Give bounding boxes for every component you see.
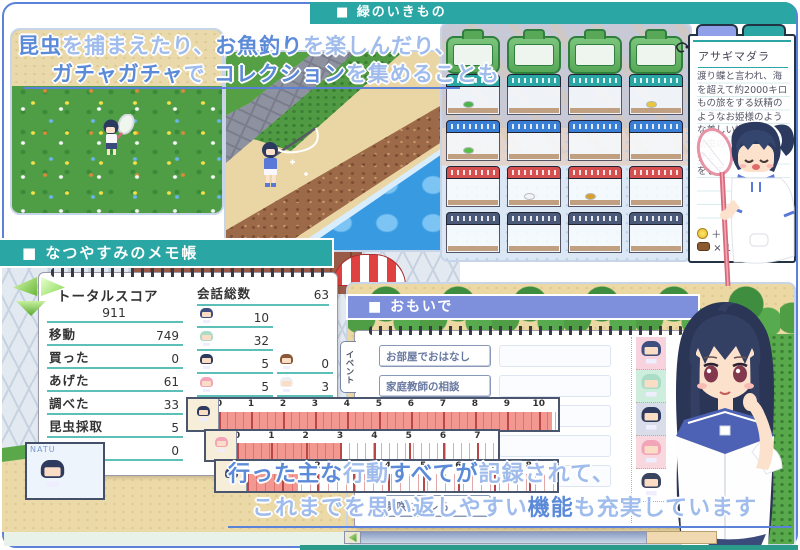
insect-tank <box>507 74 561 116</box>
tank-body <box>568 225 622 253</box>
tank-body <box>629 225 683 253</box>
spiral-binding <box>369 326 684 335</box>
tank-lid <box>629 212 683 225</box>
insect-tank <box>568 166 622 208</box>
insect-tank <box>568 212 622 254</box>
meter-tick <box>315 412 317 430</box>
meter-tick-label: 6 <box>408 400 414 409</box>
tank-lid <box>507 120 561 133</box>
encyclopedia-tab-blue[interactable] <box>696 24 738 36</box>
meter-tick-label: 7 <box>474 432 480 441</box>
conversation-cell: 32 <box>197 331 273 351</box>
memory-slot-empty <box>499 435 611 457</box>
meter-tick-label: 2 <box>303 432 309 441</box>
character-avatar <box>196 406 211 423</box>
bug <box>464 148 473 153</box>
footer-segment: これまでを思い返しやすい <box>252 496 528 521</box>
tank-body <box>629 87 683 115</box>
description-line: もの旅をする妖精の <box>697 97 790 111</box>
meter-tick-label: 10 <box>533 400 546 409</box>
conversation-count: 32 <box>219 334 269 348</box>
cage-row <box>446 120 686 162</box>
scrollbar-left-button[interactable] <box>344 531 361 544</box>
stat-label: 調べた <box>49 393 90 412</box>
tank-lid <box>446 120 500 133</box>
meter-tick <box>347 412 349 430</box>
tank-body <box>446 133 500 161</box>
carry-case <box>507 36 561 74</box>
tank-body <box>446 87 500 115</box>
conversation-cell: 0 <box>277 354 333 374</box>
memory-item[interactable]: お部屋でおはなし <box>379 345 491 367</box>
footer-segment: 行動 <box>343 462 389 487</box>
meter-tick-label: 5 <box>406 432 412 441</box>
footer-segment: 行った主な <box>228 462 343 487</box>
scrollbar-track[interactable] <box>361 531 647 544</box>
section-header-memories: ■ おもいで <box>346 294 700 320</box>
tank-body <box>629 133 683 161</box>
stat-value: 749 <box>156 329 179 343</box>
meter-tick-label: 3 <box>312 400 318 409</box>
total-score-value: 911 <box>49 305 179 320</box>
scrollbar-end <box>647 531 717 544</box>
bottom-bar <box>300 545 798 550</box>
tank-body <box>446 225 500 253</box>
stat-value: 0 <box>171 352 179 366</box>
insect-tank <box>446 166 500 208</box>
insect-tank <box>629 74 683 116</box>
footer-segment: 記録されて、 <box>479 462 615 487</box>
insect-tank <box>507 120 561 162</box>
conversation-count: 3 <box>299 380 329 394</box>
meter-tick-label: 4 <box>344 400 350 409</box>
footer-line-1: 行った主な行動すべてが記録されて、 <box>228 456 615 488</box>
conversation-count: 10 <box>219 311 269 325</box>
bug <box>525 194 534 199</box>
character-avatar <box>199 308 214 325</box>
insect-tank <box>507 166 561 208</box>
tank-body <box>446 179 500 207</box>
memory-slot-empty <box>499 345 611 367</box>
tank-lid <box>507 212 561 225</box>
meter-tick-label: 4 <box>371 432 377 441</box>
tank-lid <box>446 166 500 179</box>
conversation-row: 10 <box>197 305 333 328</box>
bug-catcher-sprite <box>96 114 136 160</box>
meter-tick-label: 0 <box>219 400 222 409</box>
banner-segment: コレクション <box>214 62 346 86</box>
promo-page: ■ 緑のいきもの ■ なつやすみのメモ帳 ■ おもいで <box>0 0 800 550</box>
tank-body <box>507 87 561 115</box>
bug <box>586 194 595 199</box>
meter-tick <box>475 412 477 430</box>
cage-row <box>446 212 686 254</box>
left-arrow-icon <box>349 533 357 542</box>
meter-tick-label: 1 <box>248 400 254 409</box>
angler-sprite <box>244 122 330 198</box>
stat-label: 昆虫採取 <box>49 416 103 435</box>
net-girl-sprite <box>694 116 800 288</box>
character-avatar <box>39 460 66 491</box>
meter-tick-label: 2 <box>280 400 286 409</box>
character-nameplate: NATU <box>25 442 105 500</box>
tank-lid <box>446 212 500 225</box>
description-line: 渡り蝶と言われ、海 <box>697 70 790 84</box>
meter-tick <box>219 412 221 430</box>
stat-value: 61 <box>164 375 179 389</box>
meter-tick <box>539 412 541 430</box>
insect-tank <box>568 74 622 116</box>
bug <box>464 102 473 107</box>
insect-tank <box>629 120 683 162</box>
conversation-count: 5 <box>219 357 269 371</box>
memory-slot-empty <box>499 375 611 397</box>
character-avatar <box>199 331 214 348</box>
footer-underline <box>228 526 792 528</box>
meter-tick <box>443 412 445 430</box>
meter-tick-label: 7 <box>440 400 446 409</box>
conversation-cell: 10 <box>197 308 273 328</box>
stat-row: 調べた 33 <box>47 392 183 415</box>
tank-lid <box>629 166 683 179</box>
spiral-binding <box>51 268 325 277</box>
banner-line-2: ガチャガチャで コレクションを集めることも <box>52 58 500 88</box>
conversation-count: 0 <box>299 357 329 371</box>
character-avatar <box>199 354 214 371</box>
species-name: アサギマダラ <box>698 48 788 68</box>
character-avatar <box>214 437 229 454</box>
tank-body <box>629 179 683 207</box>
stat-row: あげた 61 <box>47 369 183 392</box>
cage-row <box>446 166 686 208</box>
meter-fill <box>219 412 552 430</box>
banner-segment: ガチャガチャ <box>52 62 184 86</box>
meter-tick <box>411 412 413 430</box>
conversation-label: 会話総数 <box>197 283 251 302</box>
affection-meter: 012345678910 <box>186 397 560 432</box>
tank-lid <box>568 166 622 179</box>
conversation-cell: 5 <box>197 354 273 374</box>
footer-segment: すべてが <box>389 462 479 487</box>
tank-lid <box>568 74 622 87</box>
stat-row: 移動 749 <box>47 323 183 346</box>
tank-body <box>568 87 622 115</box>
tab-events[interactable]: イベント <box>340 341 356 393</box>
banner-line-1: 昆虫を捕まえたり、お魚釣りを楽しんだり、 <box>18 30 456 60</box>
total-score-label: トータルスコア <box>57 285 159 305</box>
section-header-creatures: ■ 緑のいきもの <box>310 2 796 24</box>
insect-tank <box>629 212 683 254</box>
bottom-scrollbar[interactable] <box>344 531 717 544</box>
banner-segment: を捕まえたり、 <box>62 34 215 58</box>
meter-tick-label: 1 <box>268 432 274 441</box>
nameplate-label: NATU <box>30 445 56 454</box>
carry-case <box>568 36 622 74</box>
banner-segment: で <box>184 62 214 86</box>
tank-body <box>507 179 561 207</box>
conversation-total: 63 <box>314 288 329 302</box>
insect-tank <box>446 212 500 254</box>
description-line: を超えて約2000キロ <box>697 84 790 98</box>
meter-avatar-box <box>188 399 219 430</box>
banner-segment: 昆虫 <box>18 34 62 58</box>
tank-body <box>507 133 561 161</box>
tank-lid <box>568 120 622 133</box>
meter-tick <box>507 412 509 430</box>
encyclopedia-tab-teal[interactable] <box>742 24 786 36</box>
tank-lid <box>629 74 683 87</box>
character-avatar <box>279 377 294 394</box>
stat-label: 買った <box>49 347 90 366</box>
banner-segment: を楽しんだり、 <box>303 34 456 58</box>
cord-clip-icon <box>674 40 690 54</box>
insect-tank <box>629 166 683 208</box>
stat-label: あげた <box>49 370 90 389</box>
conversation-row: 32 <box>197 328 333 351</box>
tank-body <box>507 225 561 253</box>
conversation-row: 5 3 <box>197 374 333 397</box>
banner-underline <box>24 87 460 89</box>
bug <box>647 102 656 107</box>
tank-body <box>568 133 622 161</box>
character-avatar <box>279 354 294 371</box>
tank-lid <box>507 74 561 87</box>
stat-value: 33 <box>164 398 179 412</box>
meter-tick <box>283 412 285 430</box>
conversation-row: 5 0 <box>197 351 333 374</box>
character-avatar <box>199 377 214 394</box>
memo-rule <box>693 40 791 42</box>
banner-segment: を集めることも <box>346 62 500 86</box>
footer-segment: も充実しています <box>574 496 757 521</box>
conversation-count: 5 <box>219 380 269 394</box>
insect-tank <box>507 212 561 254</box>
conversation-header: 会話総数 63 <box>197 283 329 306</box>
meter-tick <box>251 412 253 430</box>
footer-segment: 機能 <box>528 496 574 521</box>
conversation-cell: 3 <box>277 377 333 397</box>
stat-row: 昆虫採取 5 <box>47 415 183 438</box>
meter-tick-label: 3 <box>337 432 343 441</box>
meter-tick-label: 6 <box>440 432 446 441</box>
conversation-cell: 5 <box>197 377 273 397</box>
meter-tick-label: 0 <box>237 432 240 441</box>
insect-tank <box>568 120 622 162</box>
banner-segment: お魚釣り <box>215 34 303 58</box>
stat-value: 5 <box>171 421 179 435</box>
section-header-notepad: ■ なつやすみのメモ帳 <box>0 238 334 268</box>
meter-tick-label: 9 <box>504 400 510 409</box>
tank-lid <box>568 212 622 225</box>
tank-lid <box>629 120 683 133</box>
meter-tick <box>379 412 381 430</box>
meter-tick-label: 5 <box>376 400 382 409</box>
tank-lid <box>507 166 561 179</box>
meter-tick-label: 8 <box>472 400 478 409</box>
memory-item[interactable]: 家庭教師の相談 <box>379 375 491 397</box>
tank-body <box>568 179 622 207</box>
footer-line-2: これまでを思い返しやすい機能も充実しています <box>252 490 757 522</box>
insect-tank <box>446 120 500 162</box>
stat-value: 0 <box>171 444 179 458</box>
stat-row: 買った 0 <box>47 346 183 369</box>
stat-label: 移動 <box>49 324 76 343</box>
meter-ruler: 012345678910 <box>219 399 558 430</box>
